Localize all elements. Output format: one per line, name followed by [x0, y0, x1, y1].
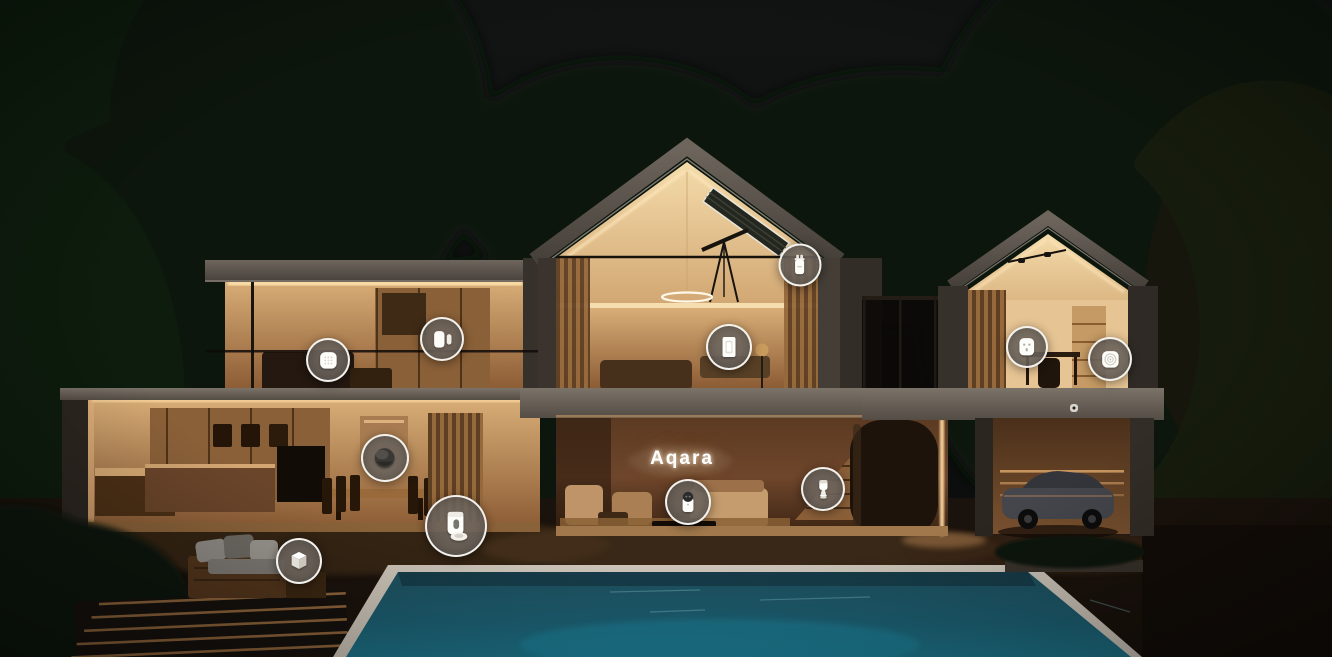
cube-icon — [286, 548, 312, 574]
hotspot-layer — [0, 0, 1332, 657]
camera-hub-icon — [675, 489, 701, 515]
door-window-sensor-icon — [430, 327, 455, 352]
presence-sensor-icon — [1098, 347, 1123, 372]
pet-feeder-icon — [438, 508, 474, 544]
curtain-driver-icon — [788, 253, 812, 277]
hub-sphere-icon — [371, 444, 398, 471]
wireless-switch-icon — [316, 348, 341, 373]
smart-hub-hotspot[interactable] — [361, 434, 409, 482]
smart-plug-hotspot[interactable] — [1006, 326, 1048, 368]
motion-sensor-icon — [811, 477, 836, 502]
camera-hub-g3-hotspot[interactable] — [665, 479, 711, 525]
cube-controller-hotspot[interactable] — [276, 538, 322, 584]
wireless-switch-hotspot[interactable] — [306, 338, 350, 382]
pet-feeder-hotspot[interactable] — [425, 495, 487, 557]
curtain-driver-hotspot[interactable] — [779, 244, 822, 287]
smart-plug-icon — [1015, 335, 1039, 359]
wall-switch-icon — [716, 334, 742, 360]
presence-sensor-hotspot[interactable] — [1088, 337, 1132, 381]
smart-wall-switch-hotspot[interactable] — [706, 324, 752, 370]
aqara-smart-home-showcase: Aqara — [0, 0, 1332, 657]
door-window-sensor-hotspot[interactable] — [420, 317, 464, 361]
motion-sensor-hotspot[interactable] — [801, 467, 845, 511]
